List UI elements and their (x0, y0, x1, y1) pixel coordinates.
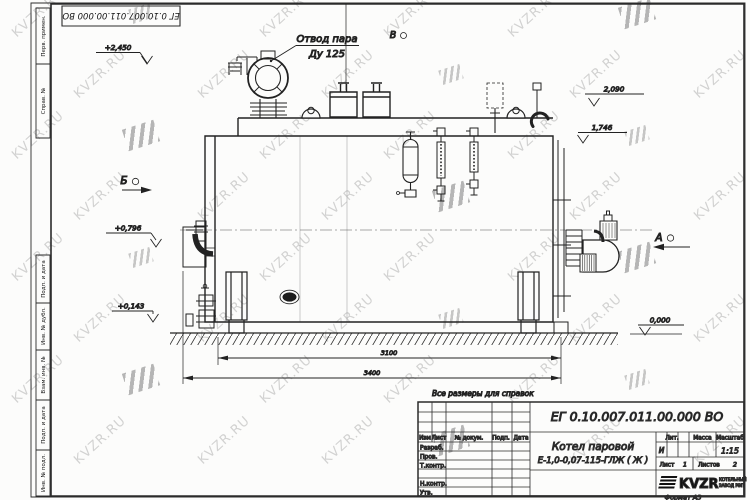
gauge-glass (466, 128, 478, 195)
margin-label: Подп. и дата (41, 260, 47, 297)
row-tkontr: Т.контр. (419, 463, 446, 470)
format-label: Формат А3 (664, 494, 701, 500)
col-dokum: № докум. (455, 436, 484, 442)
view-marker-circle (667, 235, 673, 241)
reference-note: Все размеры для справок (432, 389, 534, 398)
col-izm: Изм (419, 436, 431, 442)
margin-labels: Перв. примен. Справ. № Подп. и дата Инв.… (41, 10, 180, 492)
elevation-mark (106, 233, 162, 247)
elevation-text: 0,000 (650, 316, 671, 325)
margin-label: Взам. инв. № (41, 356, 47, 394)
sheets-value: 2 (733, 462, 737, 469)
boiler-view (170, 4, 682, 345)
dim-text-3400: 3400 (364, 369, 381, 377)
company-name: KVZR (679, 477, 719, 492)
safety-valve (330, 83, 357, 117)
elevation-text: 2,090 (604, 85, 625, 94)
support-rear (518, 272, 539, 333)
level-column (399, 132, 418, 197)
rear-pipe-hook (531, 113, 548, 126)
product-model: Е-1,0-0,07-115-ГЛЖ ( Ж ) (538, 456, 648, 466)
steam-valve-flanges (250, 99, 287, 118)
dim-text-3100: 3100 (381, 349, 398, 357)
elevation-text: +2,450 (105, 43, 132, 52)
lit-value: И (659, 446, 665, 455)
elbow-box (183, 227, 206, 267)
drawing-sheet: KVZR.RUKVZR.RUKVZR.RUKVZR.RUKVZR.RUKVZR.… (0, 0, 750, 500)
shell-joint-lines (300, 136, 347, 322)
col-list: Лист (432, 436, 447, 442)
sheet-value: 1 (683, 462, 687, 469)
view-marker-circle (401, 33, 407, 39)
ground-hatch (170, 334, 618, 346)
product-name: Котел паровой (552, 441, 635, 453)
boiler-shell (205, 118, 553, 322)
manhole-cover (283, 292, 297, 301)
margin-label: Инв. № дубл. (41, 307, 47, 345)
boiler-drawing-svg: Перв. примен. Справ. № Подп. и дата Инв.… (0, 0, 750, 500)
col-data: Дата (513, 436, 528, 442)
drain-valve (196, 288, 216, 306)
doc-number: ЕГ 0.10.007.011.00.000 ВО (551, 409, 724, 424)
elevation-text: 1,746 (592, 123, 613, 132)
lit-label: Лит. (665, 436, 679, 442)
view-marker-b: Б (120, 175, 127, 187)
safety-valve (363, 83, 390, 117)
margin-label: Перв. примен. (41, 15, 47, 57)
row-razrab: Разраб. (420, 445, 444, 452)
elevation-text: +0,796 (115, 224, 142, 233)
burner-motor-cap (604, 211, 612, 221)
elevation-mark (638, 325, 684, 335)
row-nkontr: Н.контр. (420, 481, 447, 488)
gauge-glass (433, 128, 445, 201)
elevation-mark (578, 133, 628, 144)
extension-lines (183, 271, 561, 384)
margin-label: Инв. № подл. (41, 454, 47, 492)
callout-leader-dot (270, 60, 272, 62)
support-front (226, 272, 247, 333)
margin-label: Подп. и дата (41, 406, 47, 443)
margin-label: Справ. № (41, 87, 47, 114)
dim-arrow (183, 376, 193, 381)
row-utv: Утв. (420, 490, 433, 497)
view-marker-circle (132, 178, 138, 184)
view-arrow-b-head (141, 187, 152, 193)
view-arrow-a-head (653, 244, 664, 250)
sheet-label: Лист (660, 463, 675, 469)
elevation-mark (112, 311, 159, 322)
company-sub1: КОТЕЛЬНЫЙ (719, 477, 746, 482)
scale-value: 1:15 (721, 447, 739, 456)
elevation-mark (96, 53, 153, 65)
callout-dn125: Ду 125 (308, 49, 345, 60)
dim-arrow (551, 376, 561, 381)
elevation-text: +0,143 (118, 302, 145, 311)
callout-steam-outlet: Отвод пара (297, 34, 358, 45)
view-marker-v: В (390, 30, 397, 41)
kvzr-logo: KVZR КОТЕЛЬНЫЙ ЗАВОД РЭП (658, 477, 746, 492)
row-prov: Пров. (420, 454, 438, 461)
corner-stamp-doc-number: ЕГ 0.10.007.011.00.000 ВО (62, 10, 180, 20)
bottom-fittings (186, 310, 216, 328)
elevation-mark (585, 94, 644, 106)
sensor-outline-dashed (487, 83, 503, 108)
sensor-rod (490, 108, 500, 133)
dim-arrow (551, 356, 561, 361)
mass-label: Масса (693, 436, 712, 442)
sheets-label: Листов (698, 463, 720, 469)
col-podp: Подп. (492, 436, 510, 442)
kvzr-logo-icon (658, 477, 677, 488)
dim-arrow (218, 356, 228, 361)
scale-label: Масштаб (716, 436, 744, 442)
title-block: ЕГ 0.10.007.011.00.000 ВО Изм Лист № док… (418, 402, 746, 500)
company-sub2: ЗАВОД РЭП (719, 483, 744, 488)
feed-elbow-pipe (195, 234, 213, 254)
view-marker-a: А (654, 232, 662, 244)
